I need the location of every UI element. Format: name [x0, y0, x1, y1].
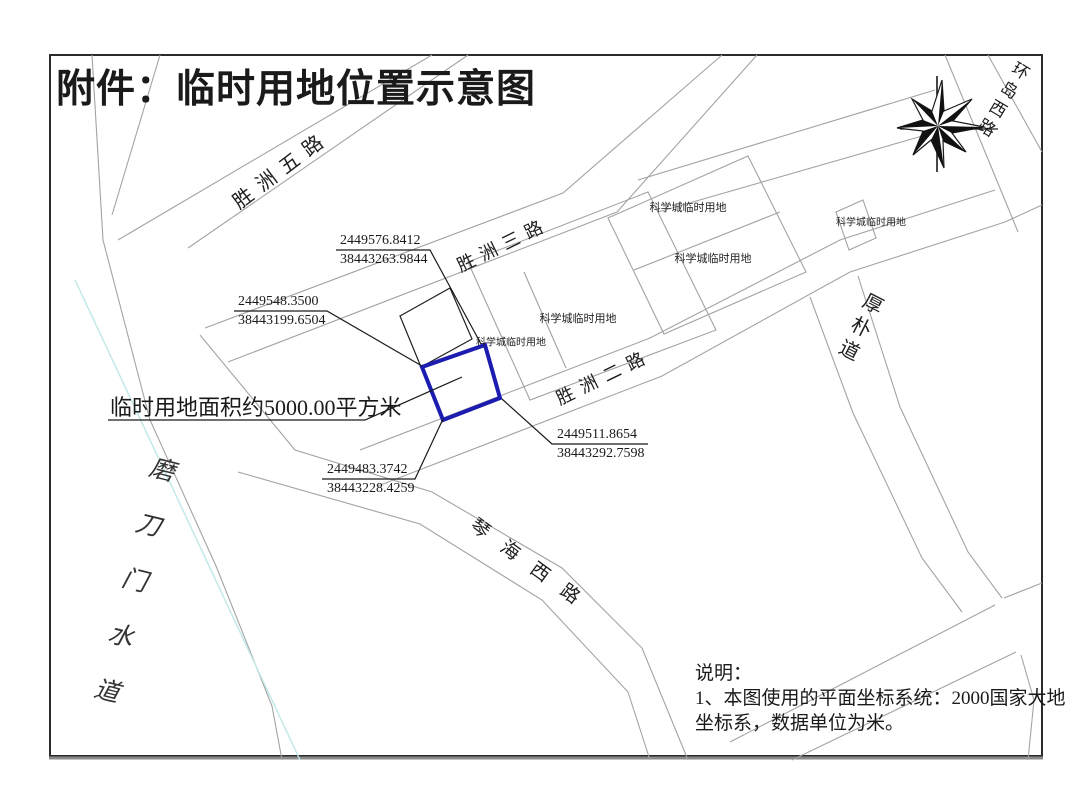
parcel-label-science-city-5: 科学城临时用地	[476, 334, 546, 349]
notes-block: 说明： 1、本图使用的平面坐标系统：2000国家大地 坐标系，数据单位为米。	[695, 661, 1066, 736]
coord-callout-2: 2449548.3500 38443199.6504	[238, 294, 326, 329]
parcel-label-science-city-1: 科学城临时用地	[650, 199, 727, 215]
road-bottomright-line-3	[1004, 583, 1042, 598]
road-houpu-line-w	[810, 297, 962, 612]
notes-line-2: 坐标系，数据单位为米。	[695, 711, 1066, 736]
road-branch-ne-line-n	[638, 90, 935, 180]
parcel-outlines	[468, 156, 876, 400]
coord-2-y: 38443199.6504	[238, 313, 326, 329]
coord-callout-4: 2449483.3742 38443228.4259	[327, 462, 415, 497]
coord-3-x: 2449511.8654	[557, 427, 645, 443]
parcel-label-science-city-4: 科学城临时用地	[540, 310, 617, 326]
coord-4-x: 2449483.3742	[327, 462, 415, 478]
road-houpu-line-e	[858, 276, 1002, 598]
coord-callout-3: 2449511.8654 38443292.7598	[557, 427, 645, 462]
notes-heading: 说明：	[695, 661, 1066, 686]
coord-1-x: 2449576.8412	[340, 233, 428, 249]
area-annotation: 临时用地面积约5000.00平方米	[110, 390, 402, 422]
coord-2-x: 2449548.3500	[238, 294, 326, 310]
coord-callout-1: 2449576.8412 38443263.9844	[340, 233, 428, 268]
parcel-label-science-city-2: 科学城临时用地	[675, 250, 752, 266]
temporary-parcel-highlight	[422, 345, 500, 420]
coord-4-y: 38443228.4259	[327, 481, 415, 497]
road-shengzhou2-line-nw	[360, 190, 995, 450]
coord-1-y: 38443263.9844	[340, 252, 428, 268]
parcel-label-science-city-3: 科学城临时用地	[836, 214, 906, 229]
page-title: 附件：临时用地位置示意图	[56, 58, 536, 114]
parcel-middle-outline	[468, 192, 716, 400]
notes-line-1: 1、本图使用的平面坐标系统：2000国家大地	[695, 686, 1066, 711]
site-location-map: 附件：临时用地位置示意图 胜洲五路 胜洲三路 胜洲二路 琴海西路 厚朴道 环岛西…	[0, 0, 1082, 804]
parcel-north-outline	[608, 156, 806, 334]
road-qinhaixi-line-s	[238, 472, 650, 760]
coord-3-y: 38443292.7598	[557, 446, 645, 462]
